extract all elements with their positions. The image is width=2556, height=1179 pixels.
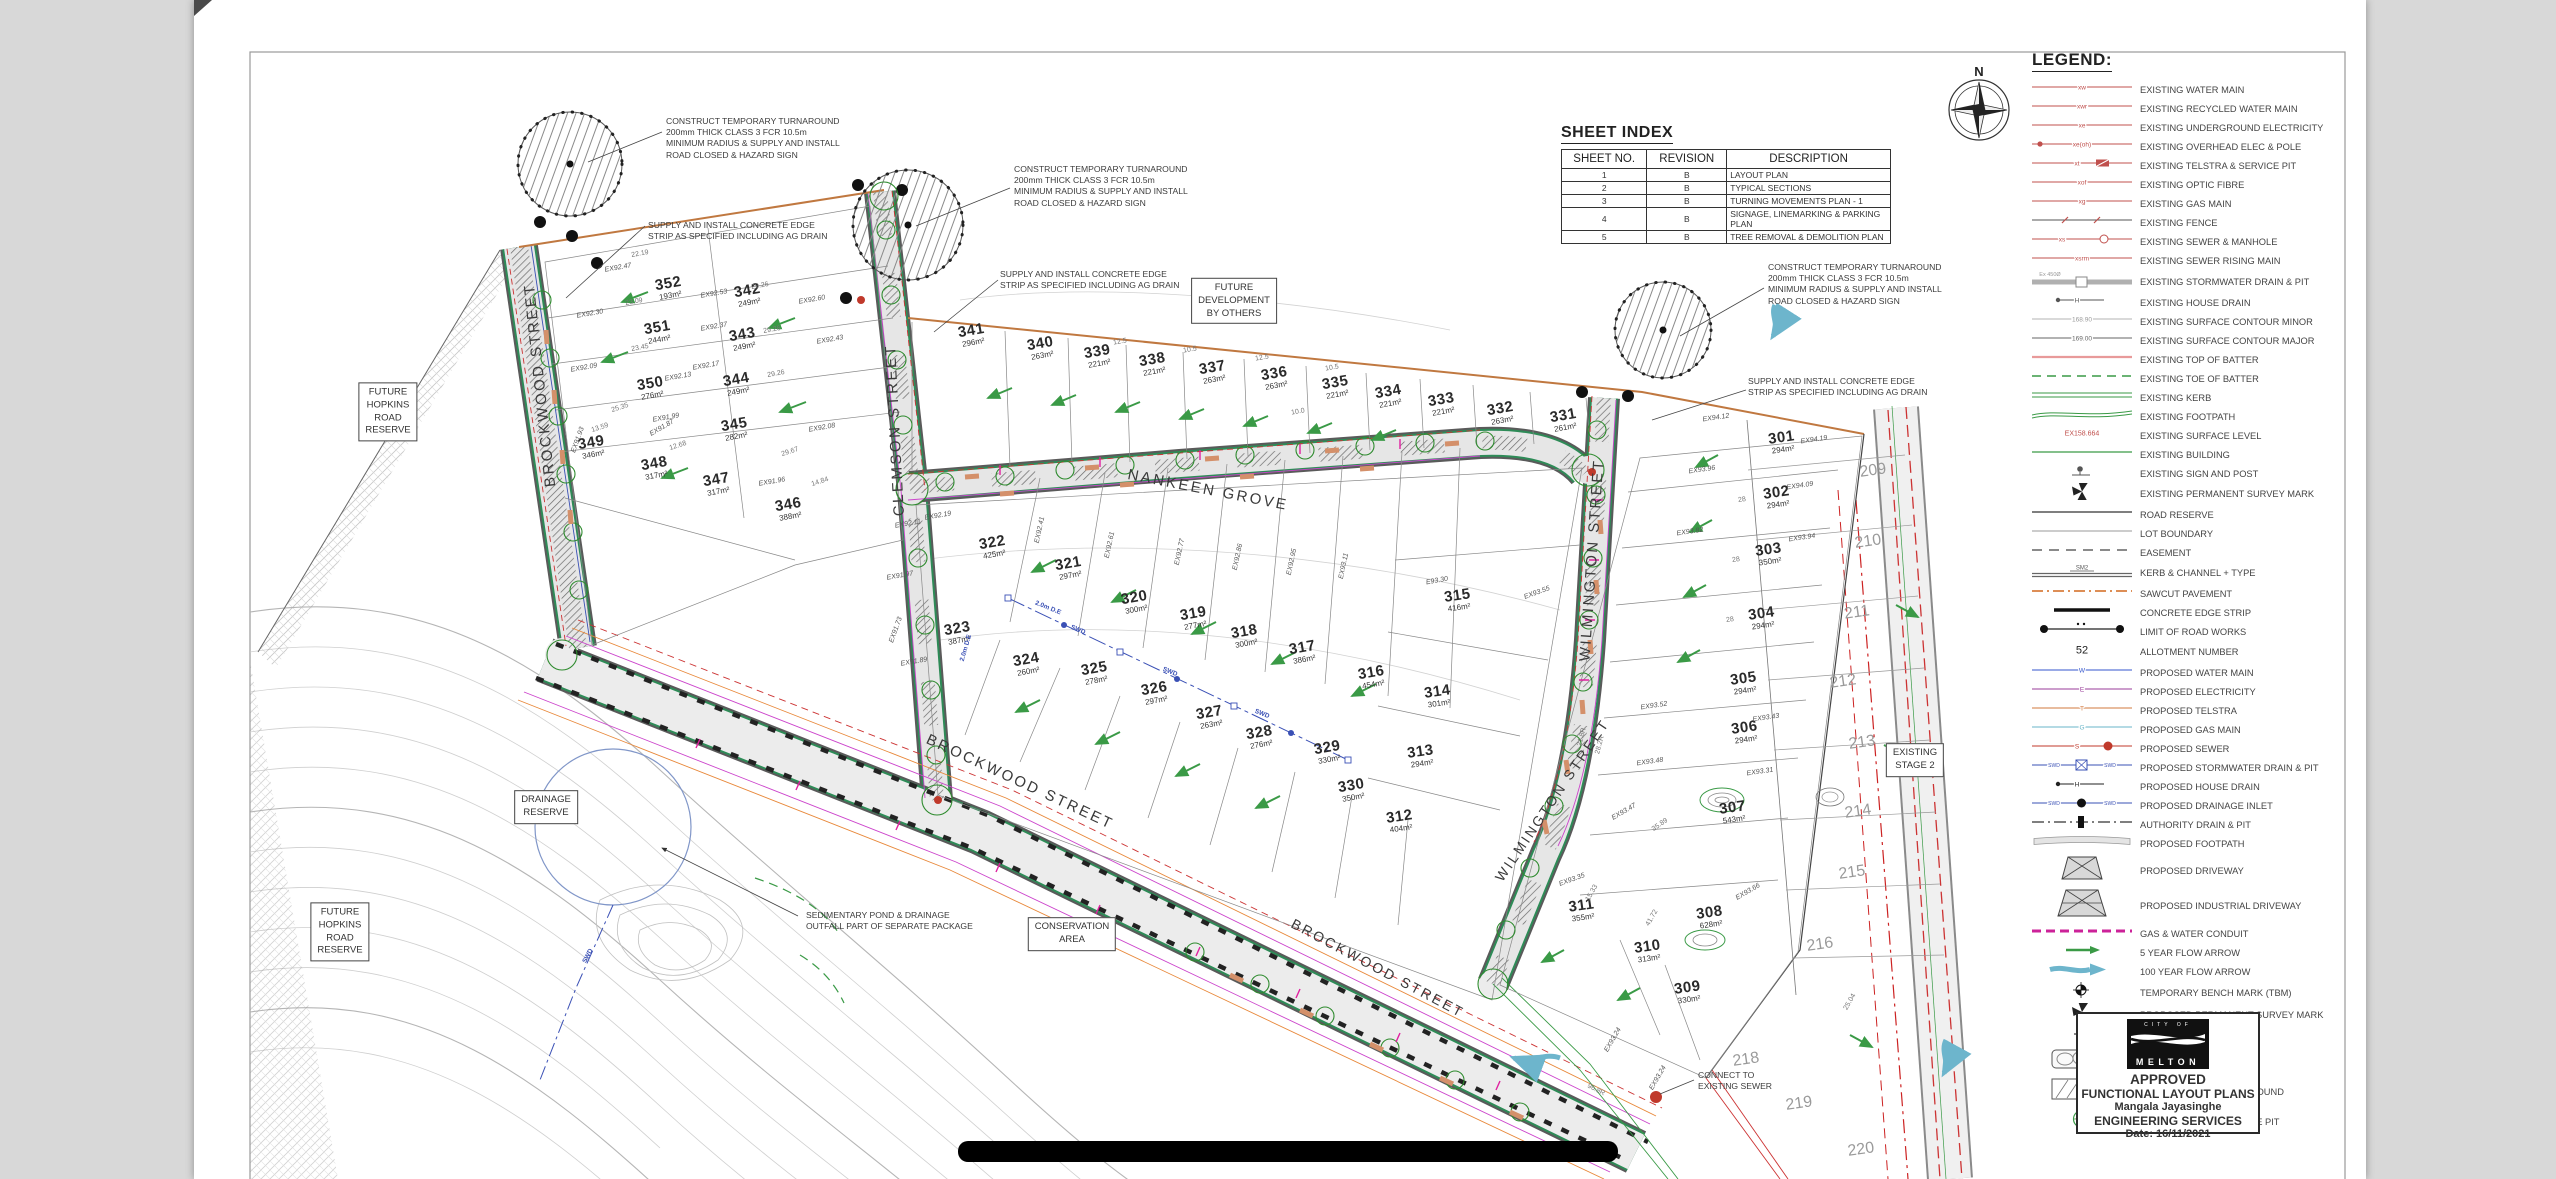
legend-item-label: EXISTING SEWER & MANHOLE [2132, 237, 2277, 247]
legend-symbol [2032, 213, 2132, 232]
legend-symbol: G [2032, 720, 2132, 739]
lot-label: 311355m² [1568, 896, 1597, 923]
legend-symbol [2032, 407, 2132, 426]
legend-symbol: 52 [2032, 641, 2132, 663]
legend-item: xtEXISTING TELSTRA & SERVICE PIT [2032, 156, 2362, 175]
legend-symbol [2032, 962, 2132, 982]
legend-item: EXISTING KERB [2032, 388, 2362, 407]
legend-item: CONCRETE EDGE STRIP [2032, 603, 2362, 622]
lot-label: 330350m² [1337, 776, 1367, 804]
legend-item-label: LIMIT OF ROAD WORKS [2132, 627, 2246, 637]
lot-label: 346388m² [774, 495, 804, 523]
svg-text:G: G [2079, 725, 2084, 732]
lot-label: 305294m² [1729, 669, 1759, 696]
legend-item: EPROPOSED ELECTRICITY [2032, 682, 2362, 701]
legend-symbol: xg [2032, 194, 2132, 213]
legend-item: PROPOSED INDUSTRIAL DRIVEWAY [2032, 887, 2362, 924]
sheet-index: SHEET INDEX SHEET NO.REVISIONDESCRIPTION… [1561, 124, 1891, 244]
legend-item: SWDSWDPROPOSED DRAINAGE INLET [2032, 796, 2362, 815]
legend-item: EXISTING FOOTPATH [2032, 407, 2362, 426]
svg-text:169.00: 169.00 [2072, 336, 2092, 343]
legend-panel: LEGEND: xwEXISTING WATER MAINxwrEXISTING… [2032, 50, 2362, 1136]
legend-symbol: H [2032, 777, 2132, 796]
sheet-index-row: 4BSIGNAGE, LINEMARKING & PARKING PLAN [1562, 208, 1891, 231]
legend-symbol: H [2032, 293, 2132, 312]
legend-symbol: S [2032, 739, 2132, 758]
legend-symbol [2032, 924, 2132, 943]
legend-symbol: EX158.664 [2032, 426, 2132, 445]
legend-symbol: xwr [2032, 99, 2132, 118]
stage2-lot-label: 220 [1847, 1139, 1876, 1161]
sheet-index-table: SHEET NO.REVISIONDESCRIPTION1BLAYOUT PLA… [1561, 149, 1891, 244]
stamp-approved: APPROVED [2078, 1072, 2258, 1088]
legend-item: HEXISTING HOUSE DRAIN [2032, 293, 2362, 312]
legend-item-label: PROPOSED SEWER [2132, 744, 2229, 754]
legend-item-label: EXISTING KERB [2132, 393, 2211, 403]
lot-label: 348317m² [640, 454, 670, 482]
svg-text:168.90: 168.90 [2072, 317, 2092, 324]
legend-title: LEGEND: [2032, 50, 2112, 72]
lot-label: 340263m² [1026, 334, 1056, 362]
lot-label: 350276m² [636, 374, 666, 402]
callout-note: CONNECT TO EXISTING SEWER [1698, 1070, 1898, 1092]
lot-label: 339221m² [1083, 342, 1113, 370]
stamp-plans: FUNCTIONAL LAYOUT PLANS [2078, 1088, 2258, 1102]
svg-text:SWD: SWD [2048, 763, 2060, 769]
svg-text:H: H [2075, 298, 2080, 305]
boxed-area-label: CONSERVATION AREA [1028, 917, 1116, 951]
lot-label: 301294m² [1767, 428, 1797, 455]
legend-item: LIMIT OF ROAD WORKS [2032, 622, 2362, 641]
callout-note: CONSTRUCT TEMPORARY TURNAROUND 200mm THI… [1768, 262, 1968, 307]
callout-note: SUPPLY AND INSTALL CONCRETE EDGE STRIP A… [1748, 376, 1948, 398]
legend-symbol: E [2032, 682, 2132, 701]
legend-symbol: Ex 450Ø [2032, 270, 2132, 293]
svg-text:xt: xt [2074, 161, 2079, 168]
svg-text:SWD: SWD [2104, 801, 2116, 807]
legend-symbol [2032, 584, 2132, 603]
legend-item-label: PROPOSED HOUSE DRAIN [2132, 782, 2260, 792]
callout-note: CONSTRUCT TEMPORARY TURNAROUND 200mm THI… [666, 116, 866, 161]
svg-text:SWD: SWD [2048, 801, 2060, 807]
legend-item: xeEXISTING UNDERGROUND ELECTRICITY [2032, 118, 2362, 137]
legend-item: TPROPOSED TELSTRA [2032, 701, 2362, 720]
legend-symbol: xs [2032, 232, 2132, 251]
callout-note: SEDIMENTARY POND & DRAINAGE OUTFALL PART… [806, 910, 1006, 932]
legend-item: xofEXISTING OPTIC FIBRE [2032, 175, 2362, 194]
svg-text:H: H [2075, 782, 2080, 789]
legend-item-label: EXISTING TOE OF BATTER [2132, 374, 2259, 384]
legend-item-label: PROPOSED STORMWATER DRAIN & PIT [2132, 763, 2319, 773]
legend-item-label: PROPOSED GAS MAIN [2132, 725, 2241, 735]
legend-item: PROPOSED FOOTPATH [2032, 834, 2362, 854]
lot-label: 324260m² [1012, 650, 1042, 678]
street-trees [533, 182, 1606, 1121]
melton-logo: CITY OF MELTON [2127, 1019, 2209, 1069]
sheet-index-row: 2BTYPICAL SECTIONS [1562, 182, 1891, 195]
legend-item: EXISTING FENCE [2032, 213, 2362, 232]
legend-item: 5 YEAR FLOW ARROW [2032, 943, 2362, 962]
svg-text:xe(oh): xe(oh) [2073, 142, 2091, 149]
legend-symbol [2032, 603, 2132, 622]
legend-item-label: LOT BOUNDARY [2132, 529, 2213, 539]
legend-symbol: xe(oh) [2032, 137, 2132, 156]
lot-label: 335221m² [1321, 373, 1351, 401]
sheet-index-row: 1BLAYOUT PLAN [1562, 169, 1891, 182]
legend-item: EXISTING PERMANENT SURVEY MARK [2032, 483, 2362, 505]
legend-symbol [2032, 369, 2132, 388]
legend-symbol [2032, 388, 2132, 407]
boxed-area-label: FUTURE DEVELOPMENT BY OTHERS [1191, 278, 1277, 324]
legend-symbol [2032, 943, 2132, 962]
lot-label: 341296m² [957, 321, 987, 349]
lot-label: 351244m² [643, 318, 673, 346]
legend-symbol: SM2 [2032, 562, 2132, 584]
lot-label: 304294m² [1747, 604, 1777, 631]
lot-label: 327263m² [1195, 703, 1225, 731]
svg-text:EX158.664: EX158.664 [2065, 431, 2100, 438]
stage2-lot-label: 218 [1732, 1049, 1761, 1071]
legend-item-label: GAS & WATER CONDUIT [2132, 929, 2248, 939]
north-label: N [1974, 64, 1983, 79]
legend-symbol: xt [2032, 156, 2132, 175]
svg-text:W: W [2079, 668, 2086, 675]
legend-symbol: xe [2032, 118, 2132, 137]
stage2-lot-label: 211 [1843, 602, 1871, 623]
svg-text:52: 52 [2076, 645, 2088, 657]
legend-item: xwEXISTING WATER MAIN [2032, 80, 2362, 99]
legend-item: EXISTING SIGN AND POST [2032, 464, 2362, 483]
legend-item: 169.00EXISTING SURFACE CONTOUR MAJOR [2032, 331, 2362, 350]
stage2-lot-label: 216 [1806, 934, 1835, 956]
legend-item-label: EXISTING OPTIC FIBRE [2132, 180, 2244, 190]
lot-label: 319277m² [1179, 604, 1209, 632]
lot-label: 329330m² [1313, 738, 1343, 766]
svg-text:xw: xw [2078, 85, 2086, 92]
legend-item: 168.90EXISTING SURFACE CONTOUR MINOR [2032, 312, 2362, 331]
legend-item: GPROPOSED GAS MAIN [2032, 720, 2362, 739]
sheet-index-col: DESCRIPTION [1727, 150, 1891, 169]
legend-item: xsEXISTING SEWER & MANHOLE [2032, 232, 2362, 251]
legend-symbol: 168.90 [2032, 312, 2132, 331]
svg-text:xof: xof [2078, 180, 2087, 187]
legend-symbol: xsrm [2032, 251, 2132, 270]
legend-symbol: T [2032, 701, 2132, 720]
legend-item: HPROPOSED HOUSE DRAIN [2032, 777, 2362, 796]
legend-symbol [2032, 622, 2132, 641]
sheet-index-col: REVISION [1647, 150, 1727, 169]
legend-item-label: TEMPORARY BENCH MARK (TBM) [2132, 988, 2292, 998]
legend-item: EXISTING TOE OF BATTER [2032, 369, 2362, 388]
legend-item-label: CONCRETE EDGE STRIP [2132, 608, 2251, 618]
svg-text:T: T [2080, 706, 2084, 713]
legend-item-label: EXISTING OVERHEAD ELEC & POLE [2132, 142, 2301, 152]
sheet-index-row: 3BTURNING MOVEMENTS PLAN - 1 [1562, 195, 1891, 208]
lot-label: 328276m² [1245, 723, 1275, 751]
legend-symbol [2032, 350, 2132, 369]
svg-text:S: S [2075, 744, 2080, 751]
drainage-pond [535, 749, 844, 1080]
lot-label: 332263m² [1486, 399, 1516, 427]
legend-symbol: 169.00 [2032, 331, 2132, 350]
legend-item-label: PROPOSED DRIVEWAY [2132, 866, 2244, 876]
legend-item-label: EXISTING PERMANENT SURVEY MARK [2132, 489, 2314, 499]
legend-item-label: EXISTING GAS MAIN [2132, 199, 2231, 209]
lot-label: 345282m² [720, 415, 750, 443]
svg-text:Ex 450Ø: Ex 450Ø [2039, 272, 2061, 278]
legend-item: PROPOSED DRIVEWAY [2032, 854, 2362, 887]
svg-text:E: E [2080, 687, 2085, 694]
legend-item-label: EXISTING STORMWATER DRAIN & PIT [2132, 277, 2309, 287]
legend-item-label: PROPOSED TELSTRA [2132, 706, 2237, 716]
legend-symbol [2032, 543, 2132, 562]
legend-item-label: PROPOSED DRAINAGE INLET [2132, 801, 2273, 811]
svg-text:xsrm: xsrm [2075, 256, 2089, 263]
melton-logo-name: MELTON [2127, 1057, 2209, 1067]
legend-symbol: W [2032, 663, 2132, 682]
legend-item-label: EXISTING WATER MAIN [2132, 85, 2244, 95]
lot-label: 334221m² [1374, 382, 1404, 410]
legend-symbol: xof [2032, 175, 2132, 194]
page-corner-notch [194, 0, 212, 16]
legend-symbol [2032, 982, 2132, 1003]
lot-label: 325278m² [1080, 659, 1110, 687]
lot-label: 320300m² [1120, 588, 1150, 616]
dimension-label: 28 [1732, 556, 1741, 564]
legend-item-label: EXISTING SURFACE CONTOUR MINOR [2132, 317, 2313, 327]
legend-item-label: EXISTING TOP OF BATTER [2132, 355, 2259, 365]
legend-item-label: EASEMENT [2132, 548, 2191, 558]
legend-item-label: PROPOSED INDUSTRIAL DRIVEWAY [2132, 901, 2301, 911]
legend-item: GAS & WATER CONDUIT [2032, 924, 2362, 943]
lot-label: 317386m² [1288, 638, 1318, 666]
lot-label: 352193m² [654, 274, 684, 302]
legend-item-label: KERB & CHANNEL + TYPE [2132, 568, 2255, 578]
boxed-area-label: DRAINAGE RESERVE [514, 790, 578, 824]
stage2-lot-label: 219 [1785, 1093, 1814, 1115]
stamp-date: Date: 16/11/2021 [2078, 1128, 2258, 1141]
melton-logo-swoosh [2127, 1028, 2209, 1050]
lot-label: 336263m² [1260, 364, 1290, 392]
lot-label: 344249m² [722, 370, 752, 398]
legend-item-label: EXISTING BUILDING [2132, 450, 2230, 460]
legend-item-label: EXISTING SIGN AND POST [2132, 469, 2258, 479]
stage2-lot-label: 214 [1844, 801, 1873, 823]
legend-symbol [2032, 834, 2132, 854]
legend-item: xgEXISTING GAS MAIN [2032, 194, 2362, 213]
lot-label: 318300m² [1230, 622, 1260, 650]
stamp-officer: Mangala Jayasinghe [2078, 1101, 2258, 1114]
legend-item-label: SAWCUT PAVEMENT [2132, 589, 2232, 599]
lot-label: 314301m² [1423, 682, 1453, 709]
legend-item: SWDSWDPROPOSED STORMWATER DRAIN & PIT [2032, 758, 2362, 777]
lot-label: 338221m² [1138, 350, 1168, 378]
legend-item-label: EXISTING SURFACE LEVEL [2132, 431, 2261, 441]
legend-item: xe(oh)EXISTING OVERHEAD ELEC & POLE [2032, 137, 2362, 156]
stage2-lot-label: 213 [1848, 732, 1877, 754]
callout-note: CONSTRUCT TEMPORARY TURNAROUND 200mm THI… [1014, 164, 1214, 209]
legend-symbol: SWDSWD [2032, 796, 2132, 815]
melton-logo-city-of: CITY OF [2127, 1019, 2209, 1028]
legend-item-label: EXISTING SURFACE CONTOUR MAJOR [2132, 336, 2314, 346]
legend-symbol [2032, 854, 2132, 887]
lot-label: 308628m² [1695, 903, 1725, 930]
lot-label: 313294m² [1406, 742, 1436, 769]
stage2-lot-label: 212 [1829, 671, 1858, 693]
legend-item: EX158.664EXISTING SURFACE LEVEL [2032, 426, 2362, 445]
lot-label: 322425m² [978, 533, 1008, 561]
legend-item: AUTHORITY DRAIN & PIT [2032, 815, 2362, 834]
sheet-index-row: 5BTREE REMOVAL & DEMOLITION PLAN [1562, 231, 1891, 244]
legend-item: 100 YEAR FLOW ARROW [2032, 962, 2362, 982]
legend-item: EXISTING TOP OF BATTER [2032, 350, 2362, 369]
legend-item-label: EXISTING UNDERGROUND ELECTRICITY [2132, 123, 2323, 133]
legend-item-label: ALLOTMENT NUMBER [2132, 647, 2239, 657]
legend-item: Ex 450ØEXISTING STORMWATER DRAIN & PIT [2032, 270, 2362, 293]
legend-symbol [2032, 524, 2132, 543]
legend-item-label: 5 YEAR FLOW ARROW [2132, 948, 2240, 958]
boxed-area-label: FUTURE HOPKINS ROAD RESERVE [358, 382, 417, 441]
legend-item: EASEMENT [2032, 543, 2362, 562]
legend-item: ROAD RESERVE [2032, 505, 2362, 524]
legend-symbol [2032, 483, 2132, 505]
legend-item-label: AUTHORITY DRAIN & PIT [2132, 820, 2251, 830]
lot-label: 307543m² [1718, 798, 1748, 825]
legend-symbol: xw [2032, 80, 2132, 99]
legend-item: 52ALLOTMENT NUMBER [2032, 641, 2362, 663]
legend-item: LOT BOUNDARY [2032, 524, 2362, 543]
legend-item-label: PROPOSED WATER MAIN [2132, 668, 2254, 678]
legend-symbol [2032, 887, 2132, 924]
lot-label: 312404m² [1385, 807, 1415, 834]
stage2-lot-label: 215 [1838, 862, 1867, 884]
legend-item: SAWCUT PAVEMENT [2032, 584, 2362, 603]
svg-text:xe: xe [2079, 123, 2086, 130]
legend-item: EXISTING BUILDING [2032, 445, 2362, 464]
lot-label: 316454m² [1357, 663, 1387, 691]
north-arrow: N [1944, 64, 2014, 153]
svg-text:SWD: SWD [2104, 763, 2116, 769]
lot-label: 333221m² [1427, 390, 1457, 418]
legend-symbol [2032, 815, 2132, 834]
stage2-lot-label: 209 [1859, 460, 1888, 482]
legend-item: TEMPORARY BENCH MARK (TBM) [2032, 982, 2362, 1003]
boxed-area-label: EXISTING STAGE 2 [1886, 743, 1944, 777]
legend-item: SM2KERB & CHANNEL + TYPE [2032, 562, 2362, 584]
legend-item-label: EXISTING RECYCLED WATER MAIN [2132, 104, 2298, 114]
svg-text:xg: xg [2079, 199, 2086, 206]
legend-item: WPROPOSED WATER MAIN [2032, 663, 2362, 682]
callout-note: SUPPLY AND INSTALL CONCRETE EDGE STRIP A… [648, 220, 848, 242]
lot-label: 343249m² [728, 325, 758, 353]
legend-item: SPROPOSED SEWER [2032, 739, 2362, 758]
boxed-area-label: FUTURE HOPKINS ROAD RESERVE [310, 902, 369, 961]
svg-text:SM2: SM2 [2076, 566, 2089, 572]
lot-label: 315416m² [1443, 586, 1473, 613]
legend-item: xsrmEXISTING SEWER RISING MAIN [2032, 251, 2362, 270]
stage2-lot-label: 210 [1854, 531, 1883, 553]
legend-symbol [2032, 445, 2132, 464]
lot-label: 337263m² [1198, 358, 1228, 386]
plan-viewer: 352193m²342249m²351244m²343249m²350276m²… [0, 0, 2556, 1179]
sheet-index-col: SHEET NO. [1562, 150, 1647, 169]
lot-label: 331261m² [1549, 406, 1579, 434]
lot-label: 326297m² [1140, 679, 1170, 707]
legend-item-label: EXISTING HOUSE DRAIN [2132, 298, 2251, 308]
legend-item-label: EXISTING TELSTRA & SERVICE PIT [2132, 161, 2296, 171]
legend-item-label: EXISTING FOOTPATH [2132, 412, 2235, 422]
legend-item-label: PROPOSED ELECTRICITY [2132, 687, 2256, 697]
lot-label: 321297m² [1054, 554, 1084, 582]
legend-item-label: PROPOSED FOOTPATH [2132, 839, 2245, 849]
approval-stamp: CITY OF MELTON APPROVED FUNCTIONAL LAYOU… [2076, 1012, 2260, 1134]
dimension-label: 28 [1726, 616, 1735, 624]
redaction-bar [958, 1141, 1618, 1162]
legend-item: xwrEXISTING RECYCLED WATER MAIN [2032, 99, 2362, 118]
legend-symbol: SWDSWD [2032, 758, 2132, 777]
svg-text:xs: xs [2059, 237, 2066, 244]
sheet-index-title: SHEET INDEX [1561, 124, 1673, 144]
legend-item-label: EXISTING FENCE [2132, 218, 2218, 228]
stamp-department: ENGINEERING SERVICES [2078, 1115, 2258, 1129]
legend-item-label: EXISTING SEWER RISING MAIN [2132, 256, 2281, 266]
lot-label: 347317m² [702, 470, 732, 498]
lot-label: 303350m² [1754, 540, 1784, 567]
legend-item-label: ROAD RESERVE [2132, 510, 2214, 520]
dimension-label: 28 [1738, 496, 1747, 504]
legend-symbol [2032, 464, 2132, 483]
lot-label: 310313m² [1633, 937, 1663, 964]
svg-text:xwr: xwr [2077, 104, 2088, 111]
callout-note: SUPPLY AND INSTALL CONCRETE EDGE STRIP A… [1000, 269, 1200, 291]
legend-item-label: 100 YEAR FLOW ARROW [2132, 967, 2250, 977]
lot-label: 309330m² [1673, 978, 1703, 1005]
legend-symbol [2032, 505, 2132, 524]
